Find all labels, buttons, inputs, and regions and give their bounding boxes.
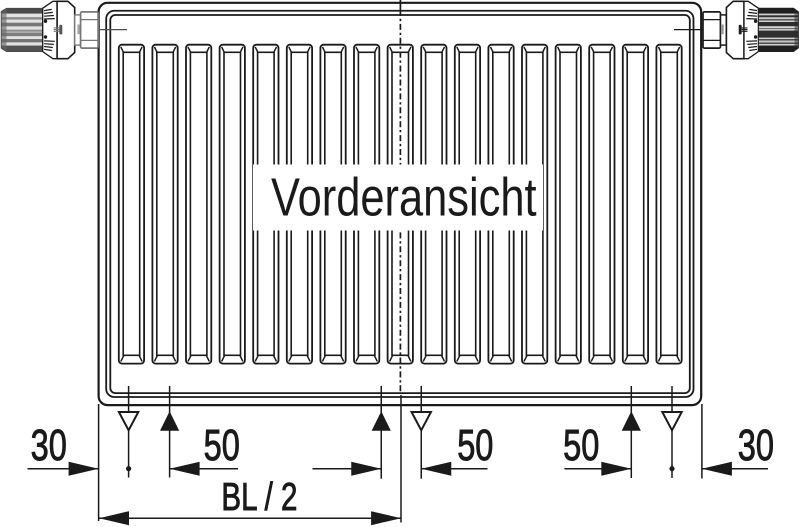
svg-text:30: 30 — [31, 421, 67, 470]
svg-text:30: 30 — [738, 421, 774, 470]
svg-text:50: 50 — [457, 421, 493, 470]
svg-text:Vorderansicht: Vorderansicht — [271, 168, 537, 227]
svg-text:50: 50 — [563, 421, 599, 470]
svg-text:BL / 2: BL / 2 — [221, 476, 297, 519]
svg-text:50: 50 — [204, 421, 240, 470]
